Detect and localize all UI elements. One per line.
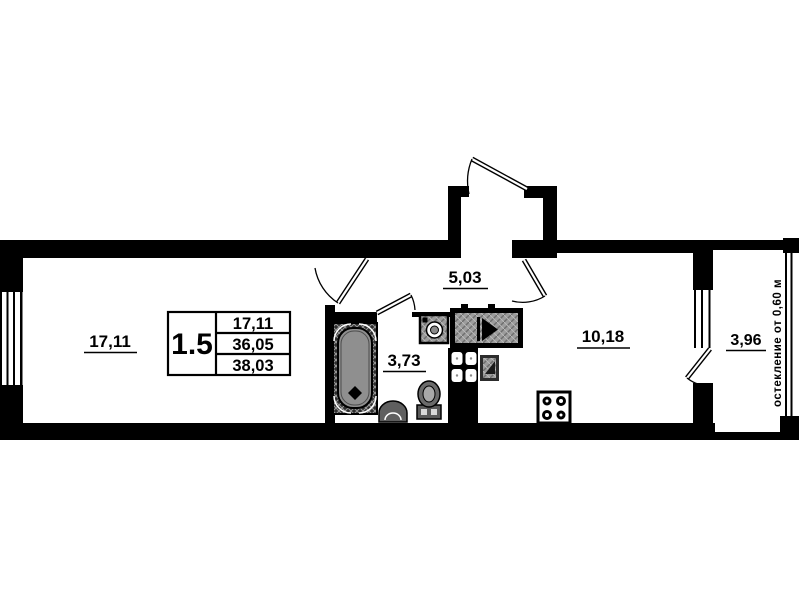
balcony-door-icon <box>687 349 710 386</box>
wardrobe-icon <box>450 304 523 348</box>
hallway-area-label: 5,03 <box>443 268 488 289</box>
sink-icon <box>379 401 407 422</box>
balcony-glazing-icon <box>785 252 793 417</box>
wall-segment <box>780 416 799 440</box>
bathroom-area-label: 3,73 <box>383 351 426 372</box>
bathroom-area-text: 3,73 <box>387 351 420 370</box>
room-door-icon <box>315 259 367 303</box>
wall-segment <box>0 240 23 292</box>
info-table-row-2: 36,05 <box>232 336 273 354</box>
bathtub-icon <box>333 323 377 414</box>
wall-segment <box>713 240 785 250</box>
window-kitchen-balcony-icon <box>694 290 711 348</box>
floor-plan-page: 17,11 5,03 3,73 10,18 3,96 остекление от… <box>0 0 799 600</box>
water-heater-icon <box>480 355 499 381</box>
balcony-area-text: 3,96 <box>730 332 761 349</box>
wall-segment <box>557 240 693 253</box>
wall-segment <box>693 383 713 428</box>
wall-segment <box>325 312 377 323</box>
bathroom-door-icon <box>377 295 415 313</box>
wall-segment <box>0 240 448 258</box>
stove-icon <box>538 392 570 423</box>
wall-segment <box>524 186 557 198</box>
window-left-icon <box>0 292 23 385</box>
wall-segment <box>715 432 783 440</box>
info-table-row-3: 38,03 <box>232 357 273 375</box>
entrance-door-icon <box>468 159 527 194</box>
room-area-text: 17,11 <box>89 332 131 351</box>
hallway-area-text: 5,03 <box>448 268 481 287</box>
washing-machine-icon <box>420 315 448 343</box>
info-table: 1.5 17,11 36,05 38,03 <box>168 312 290 375</box>
wall-segment <box>448 186 469 197</box>
wall-segment <box>693 240 713 290</box>
balcony-glazing-note: остекление от 0,60 м <box>772 279 784 407</box>
wall-segment <box>0 423 715 440</box>
info-table-row-1: 17,11 <box>233 315 273 333</box>
wall-segment <box>512 240 557 258</box>
wall-segment <box>783 238 799 253</box>
room-area-label: 17,11 <box>84 332 137 353</box>
floor-plan: 17,11 5,03 3,73 10,18 3,96 остекление от… <box>0 0 799 600</box>
toilet-icon <box>417 381 441 419</box>
kitchen-area-text: 10,18 <box>582 327 625 346</box>
info-table-rooms: 1.5 <box>171 328 213 361</box>
kitchen-area-label: 10,18 <box>577 327 630 348</box>
balcony-area-label: 3,96 <box>726 332 766 351</box>
hall-kitchen-door-icon <box>512 260 545 302</box>
